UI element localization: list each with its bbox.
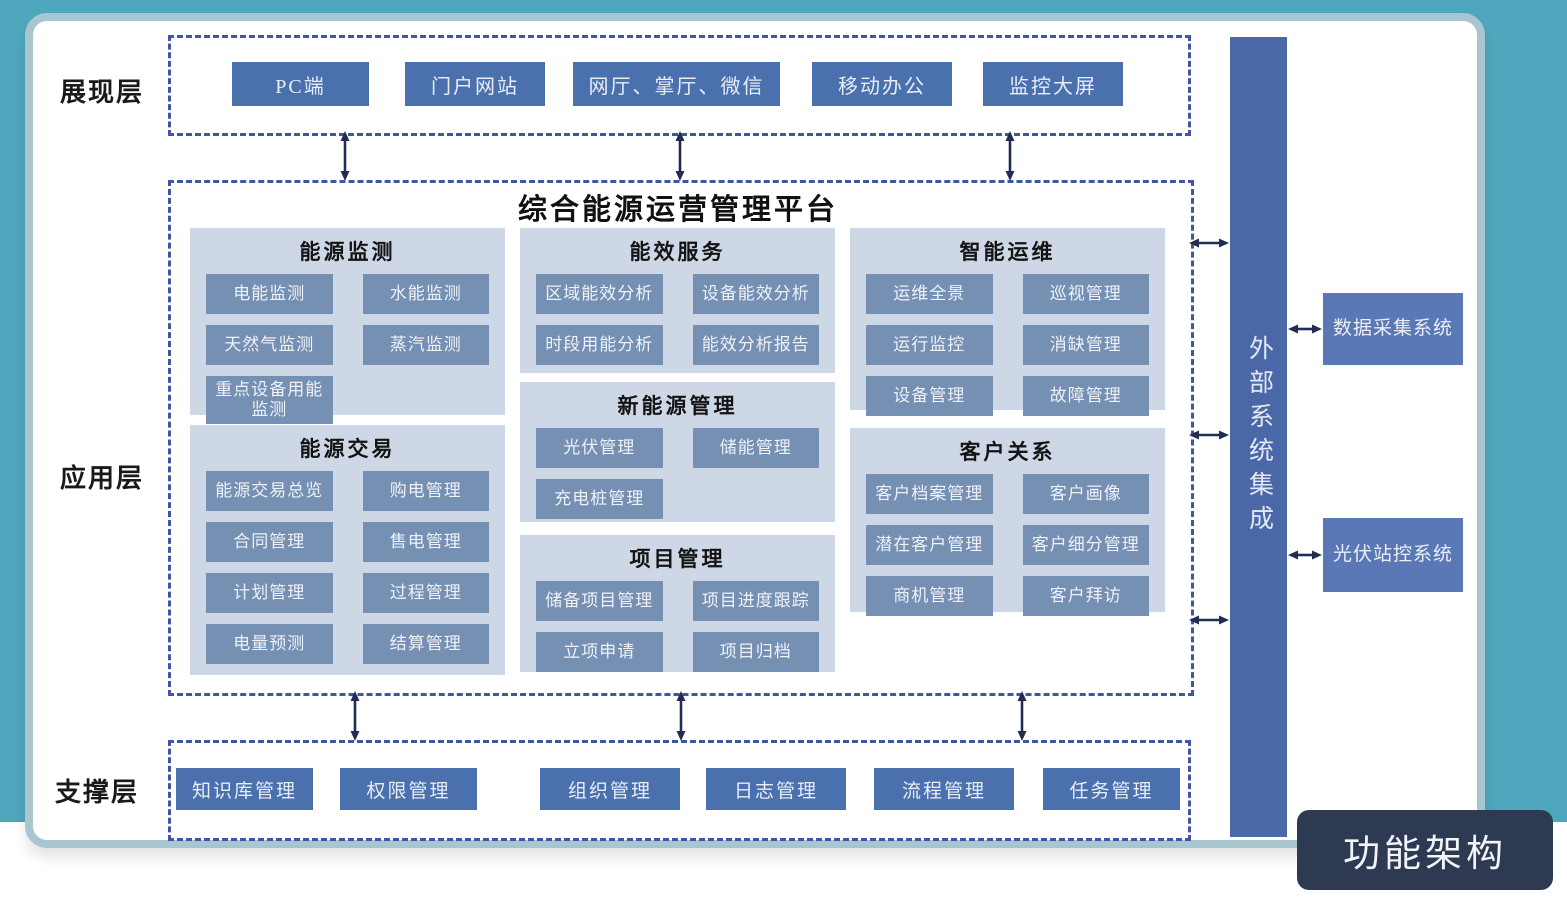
node-portal: 门户网站 <box>405 62 545 106</box>
module-item: 能源交易总览 <box>206 471 333 511</box>
double-arrow-icon <box>673 131 687 181</box>
node-data-collection-system: 数据采集系统 <box>1323 293 1463 365</box>
group-intelligent-om: 智能运维 运维全景 巡视管理 运行监控 消缺管理 设备管理 故障管理 <box>850 228 1165 410</box>
external-integration-bar: 外部系统集成 <box>1230 37 1287 837</box>
module-item: 运维全景 <box>866 274 993 314</box>
group-title: 新能源管理 <box>536 390 819 420</box>
double-arrow-icon <box>1288 547 1322 563</box>
module-item: 光伏管理 <box>536 428 663 468</box>
group-project-management: 项目管理 储备项目管理 项目进度跟踪 立项申请 项目归档 <box>520 535 835 672</box>
node-pc: PC端 <box>232 62 369 106</box>
module-item: 设备能效分析 <box>693 274 820 314</box>
node-bigscreen: 监控大屏 <box>983 62 1123 106</box>
node-workflow: 流程管理 <box>874 768 1014 810</box>
group-title: 客户关系 <box>866 436 1149 466</box>
double-arrow-icon <box>1003 131 1017 181</box>
module-item: 充电桩管理 <box>536 479 663 519</box>
module-item: 能效分析报告 <box>693 325 820 365</box>
module-item: 重点设备用能监测 <box>206 376 333 424</box>
module-item: 售电管理 <box>363 522 490 562</box>
module-item: 客户档案管理 <box>866 474 993 514</box>
module-item: 储能管理 <box>693 428 820 468</box>
module-item: 计划管理 <box>206 573 333 613</box>
support-layer-label: 支撑层 <box>55 772 139 809</box>
module-item: 客户细分管理 <box>1023 525 1150 565</box>
node-logs: 日志管理 <box>706 768 846 810</box>
module-item: 消缺管理 <box>1023 325 1150 365</box>
group-title: 能源交易 <box>206 433 489 463</box>
module-item: 电能监测 <box>206 274 333 314</box>
module-item: 区域能效分析 <box>536 274 663 314</box>
module-item: 项目进度跟踪 <box>693 581 820 621</box>
module-item: 立项申请 <box>536 632 663 672</box>
module-item: 故障管理 <box>1023 376 1150 416</box>
module-item: 设备管理 <box>866 376 993 416</box>
module-item: 水能监测 <box>363 274 490 314</box>
module-item: 蒸汽监测 <box>363 325 490 365</box>
module-item: 项目归档 <box>693 632 820 672</box>
platform-title: 综合能源运营管理平台 <box>168 186 1188 228</box>
module-item: 客户画像 <box>1023 474 1150 514</box>
module-item: 客户拜访 <box>1023 576 1150 616</box>
module-item: 天然气监测 <box>206 325 333 365</box>
group-title: 智能运维 <box>866 236 1149 266</box>
group-title: 能效服务 <box>536 236 819 266</box>
node-channels: 网厅、掌厅、微信 <box>573 62 780 106</box>
group-energy-monitoring: 能源监测 电能监测 水能监测 天然气监测 蒸汽监测 重点设备用能监测 <box>190 228 505 415</box>
module-item: 结算管理 <box>363 624 490 664</box>
double-arrow-icon <box>348 691 362 741</box>
double-arrow-icon <box>1015 691 1029 741</box>
module-item: 过程管理 <box>363 573 490 613</box>
group-new-energy: 新能源管理 光伏管理 储能管理 充电桩管理 <box>520 382 835 522</box>
external-integration-label: 外部系统集成 <box>1241 335 1277 539</box>
group-customer-relations: 客户关系 客户档案管理 客户画像 潜在客户管理 客户细分管理 商机管理 客户拜访 <box>850 428 1165 612</box>
module-item: 储备项目管理 <box>536 581 663 621</box>
module-item: 购电管理 <box>363 471 490 511</box>
application-layer-label: 应用层 <box>60 458 144 495</box>
node-pv-station-control-system: 光伏站控系统 <box>1323 518 1463 592</box>
module-item: 商机管理 <box>866 576 993 616</box>
node-organization: 组织管理 <box>540 768 680 810</box>
double-arrow-icon <box>674 691 688 741</box>
node-mobile: 移动办公 <box>812 62 952 106</box>
node-tasks: 任务管理 <box>1043 768 1180 810</box>
group-title: 项目管理 <box>536 543 819 573</box>
presentation-layer-label: 展现层 <box>60 72 144 109</box>
functional-architecture-diagram: 展现层 应用层 支撑层 PC端 门户网站 网厅、掌厅、微信 移动办公 监控大屏 … <box>0 0 1567 906</box>
module-item: 电量预测 <box>206 624 333 664</box>
diagram-badge: 功能架构 <box>1297 810 1553 890</box>
group-energy-efficiency: 能效服务 区域能效分析 设备能效分析 时段用能分析 能效分析报告 <box>520 228 835 373</box>
module-item: 运行监控 <box>866 325 993 365</box>
module-item: 时段用能分析 <box>536 325 663 365</box>
double-arrow-icon <box>1189 427 1229 443</box>
double-arrow-icon <box>338 131 352 181</box>
module-item: 巡视管理 <box>1023 274 1150 314</box>
double-arrow-icon <box>1189 612 1229 628</box>
double-arrow-icon <box>1189 235 1229 251</box>
group-title: 能源监测 <box>206 236 489 266</box>
group-energy-trading: 能源交易 能源交易总览 购电管理 合同管理 售电管理 计划管理 过程管理 电量预… <box>190 425 505 675</box>
node-knowledge-base: 知识库管理 <box>176 768 313 810</box>
node-permissions: 权限管理 <box>340 768 477 810</box>
double-arrow-icon <box>1288 321 1322 337</box>
module-item: 合同管理 <box>206 522 333 562</box>
module-item: 潜在客户管理 <box>866 525 993 565</box>
